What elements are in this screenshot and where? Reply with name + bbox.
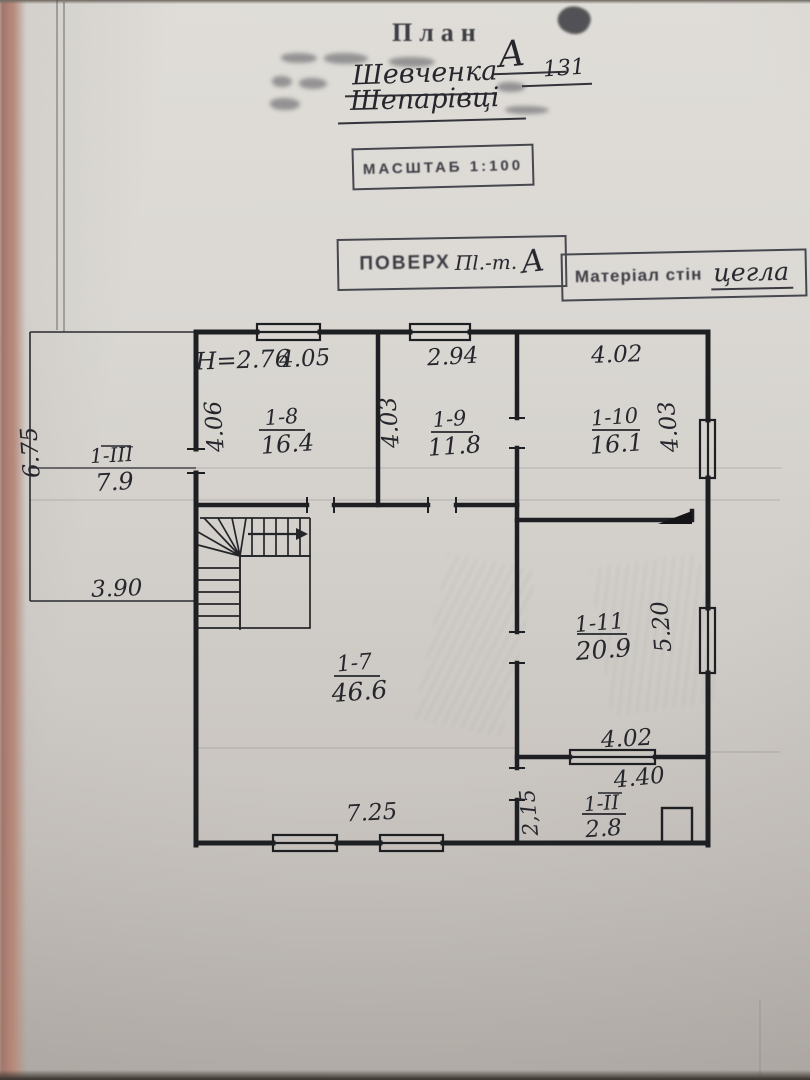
dim-room11-width: 4.02 (599, 725, 653, 754)
photo-bottom-edge (0, 1070, 810, 1080)
porch-id: 1-ІІІ (89, 442, 134, 468)
room8-area: 16.4 (260, 428, 315, 460)
dim-room11-depth: 5.20 (647, 600, 677, 653)
room11-area: 20.9 (574, 633, 633, 666)
plan-labels: Н=2.76 4.05 4.06 1-8 16.4 2.94 4.03 1-9 … (16, 341, 684, 843)
wall-room11-north (517, 511, 692, 520)
dim-porch-width: 3.90 (91, 575, 143, 603)
room7-id: 1-7 (336, 650, 373, 678)
room7-area: 46.6 (330, 675, 389, 708)
dim-room9-width: 2.94 (425, 343, 479, 372)
dim-porch-depth: 6.75 (16, 426, 46, 479)
dim-room10-width: 4.02 (590, 341, 643, 369)
room2-id: 1-ІІ (583, 790, 621, 816)
ceiling-height-note: Н=2.76 (194, 344, 290, 375)
stair-winders (198, 518, 246, 556)
dim-room8-depth: 4.06 (200, 400, 230, 454)
dim-room2-depth: 2,15 (515, 788, 543, 838)
door-jamb (509, 418, 525, 448)
paper-fold-lines (57, 0, 64, 332)
dim-room10-depth: 4.03 (654, 400, 684, 454)
room2-area: 2.8 (583, 815, 622, 844)
room10-id: 1-10 (590, 403, 639, 430)
floor-plan-drawing: Н=2.76 4.05 4.06 1-8 16.4 2.94 4.03 1-9 … (0, 0, 810, 1080)
porch-area: 7.9 (95, 467, 135, 497)
room9-area: 11.8 (427, 430, 482, 462)
stair-treads (196, 568, 240, 628)
dim-room9-depth: 4.03 (375, 396, 405, 450)
stair-well (240, 556, 310, 628)
faint-pencil-lines (30, 468, 782, 1075)
stair-treads (252, 518, 300, 556)
room8-id: 1-8 (264, 404, 299, 430)
scanned-plan-photo: План А Шевченка 131 Шепарівці МАСШТАБ 1:… (0, 0, 810, 1080)
room10-area: 16.1 (589, 428, 644, 460)
staircase (196, 518, 310, 630)
flue-box (662, 808, 692, 842)
dim-room7-width: 7.25 (345, 799, 398, 828)
dim-room8-width: 4.05 (277, 345, 331, 374)
room9-id: 1-9 (432, 406, 467, 432)
dim-room2-width: 4.40 (611, 762, 666, 793)
door-jamb (187, 449, 205, 473)
stair-direction-arrow-head (296, 528, 308, 540)
door-jamb (509, 632, 525, 663)
door-openings (187, 418, 525, 800)
